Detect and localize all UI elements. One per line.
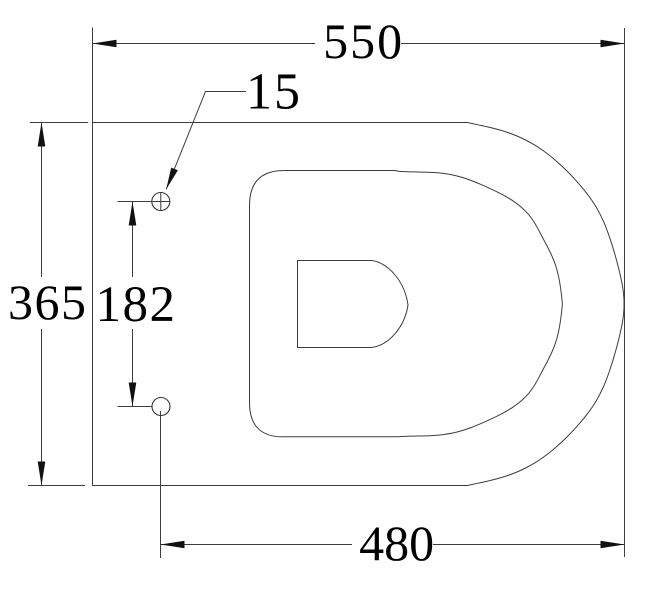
svg-text:550: 550: [323, 13, 404, 69]
svg-text:182: 182: [96, 277, 177, 333]
svg-text:480: 480: [359, 515, 434, 571]
svg-text:365: 365: [8, 274, 88, 330]
svg-text:15: 15: [246, 64, 302, 121]
